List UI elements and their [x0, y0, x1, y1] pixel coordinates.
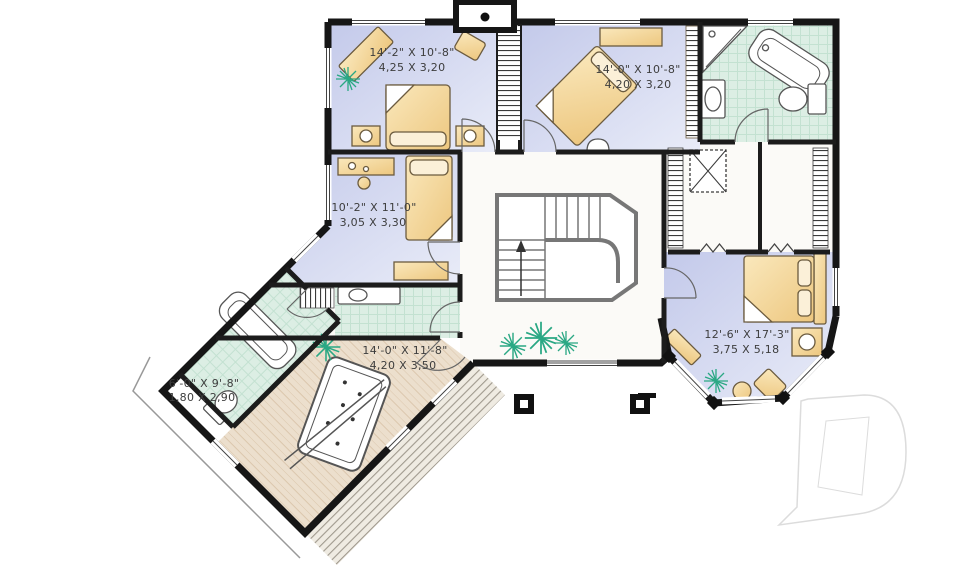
watermark-logo-d [779, 395, 906, 525]
sink [349, 289, 367, 301]
staircase [497, 195, 636, 300]
wall-lamp [587, 139, 609, 151]
window [555, 19, 640, 26]
desk-item [349, 163, 356, 170]
room-dimension-metric: 3,05 X 3,30 [340, 216, 407, 229]
floor-plan: 14'-2" X 10'-8" 4,25 X 3,20 14'-0" X 10'… [0, 0, 960, 569]
toilet-bowl [779, 87, 807, 111]
window [325, 48, 332, 108]
room-dimension-imperial: 10'-2" X 11'-0" [331, 201, 416, 214]
room-dimension-imperial: 14'-0" X 10'-8" [595, 63, 680, 76]
pillow [798, 290, 811, 316]
pillow [798, 260, 811, 286]
shower-head [709, 31, 715, 37]
closet-rail [668, 148, 683, 248]
room-dimension-metric: 4,20 X 3,50 [370, 359, 437, 372]
lamp [360, 130, 372, 142]
watermark-inner [818, 417, 869, 495]
toilet-tank [808, 84, 826, 114]
window [547, 360, 617, 367]
headboard [814, 252, 826, 324]
closet-rail [686, 26, 698, 138]
desk-item [364, 167, 369, 172]
floor-plan-canvas: 14'-2" X 10'-8" 4,25 X 3,20 14'-0" X 10'… [0, 0, 960, 569]
room-dimension-imperial: 14'-2" X 10'-8" [369, 46, 454, 59]
room-dimension-metric: 3,75 X 5,18 [713, 343, 780, 356]
dresser [394, 262, 448, 280]
pillow [410, 160, 448, 175]
sink [705, 87, 721, 111]
chimney-flue [481, 13, 490, 22]
room-dimension-metric: 4,25 X 3,20 [379, 61, 446, 74]
window [352, 19, 425, 26]
lamp [799, 334, 815, 350]
closet-rail [813, 148, 828, 248]
vanity [338, 287, 400, 304]
dresser [600, 28, 662, 46]
room-dimension-imperial: 6'-0" X 9'-8" [169, 377, 240, 390]
porch-column-core [520, 400, 528, 408]
room-dimension-metric: 4,20 X 3,20 [605, 78, 672, 91]
desk-stool [358, 177, 370, 189]
lamp [464, 130, 476, 142]
closet-strip-rail [498, 26, 520, 140]
window [833, 268, 840, 306]
pillows [390, 132, 446, 146]
room-dimension-imperial: 12'-6" X 17'-3" [704, 328, 789, 341]
window [748, 19, 793, 26]
porch-column-core [636, 400, 644, 408]
room-dimension-imperial: 14'-0" X 11'-8" [362, 344, 447, 357]
room-dimension-metric: 1,80 X 2,90 [169, 391, 236, 404]
